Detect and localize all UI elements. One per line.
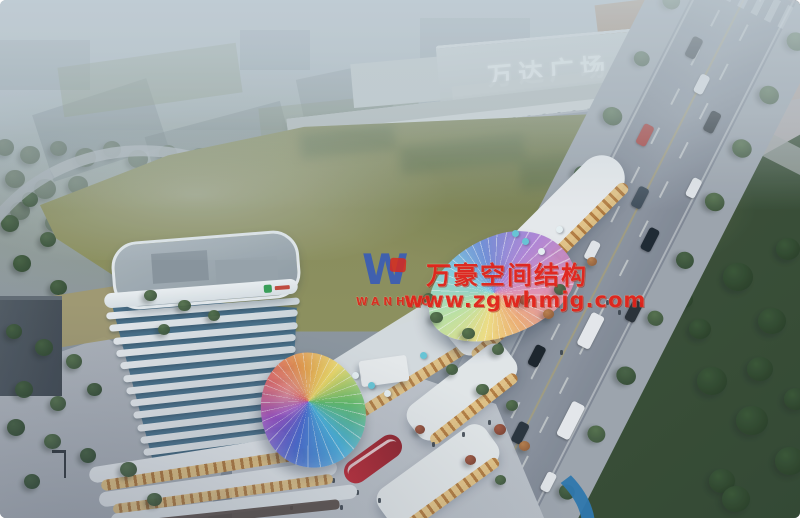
watermark-logo-badge [390,258,407,273]
watermark-line1: 万豪空间结构 [426,256,588,292]
architectural-rendering: 万达广场 [0,0,800,518]
watermark-line2: www.zgwhmjg.com [404,288,646,312]
watermark: W WANHAO 万豪空间结构 www.zgwhmjg.com [356,248,606,320]
